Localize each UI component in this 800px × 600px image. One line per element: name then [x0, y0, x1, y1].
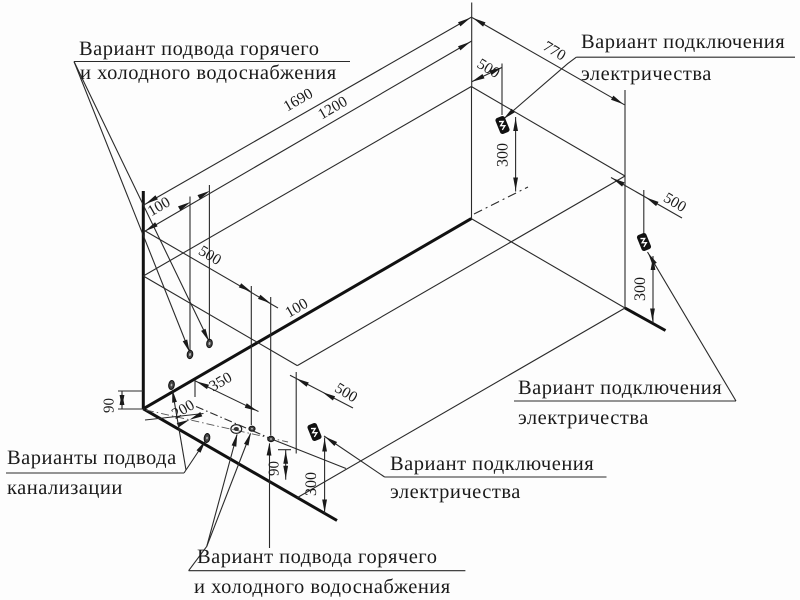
svg-text:300: 300: [632, 277, 649, 301]
svg-text:770: 770: [540, 38, 569, 65]
svg-text:90: 90: [102, 398, 118, 413]
svg-text:100: 100: [282, 295, 311, 321]
svg-text:350: 350: [206, 369, 235, 395]
svg-text:1200: 1200: [315, 93, 351, 123]
svg-text:300: 300: [495, 143, 512, 167]
svg-text:500: 500: [195, 242, 224, 269]
svg-text:90: 90: [267, 461, 283, 476]
svg-text:300: 300: [303, 472, 320, 496]
svg-text:500: 500: [332, 380, 361, 407]
svg-text:500: 500: [660, 189, 689, 216]
svg-text:1690: 1690: [281, 85, 317, 115]
